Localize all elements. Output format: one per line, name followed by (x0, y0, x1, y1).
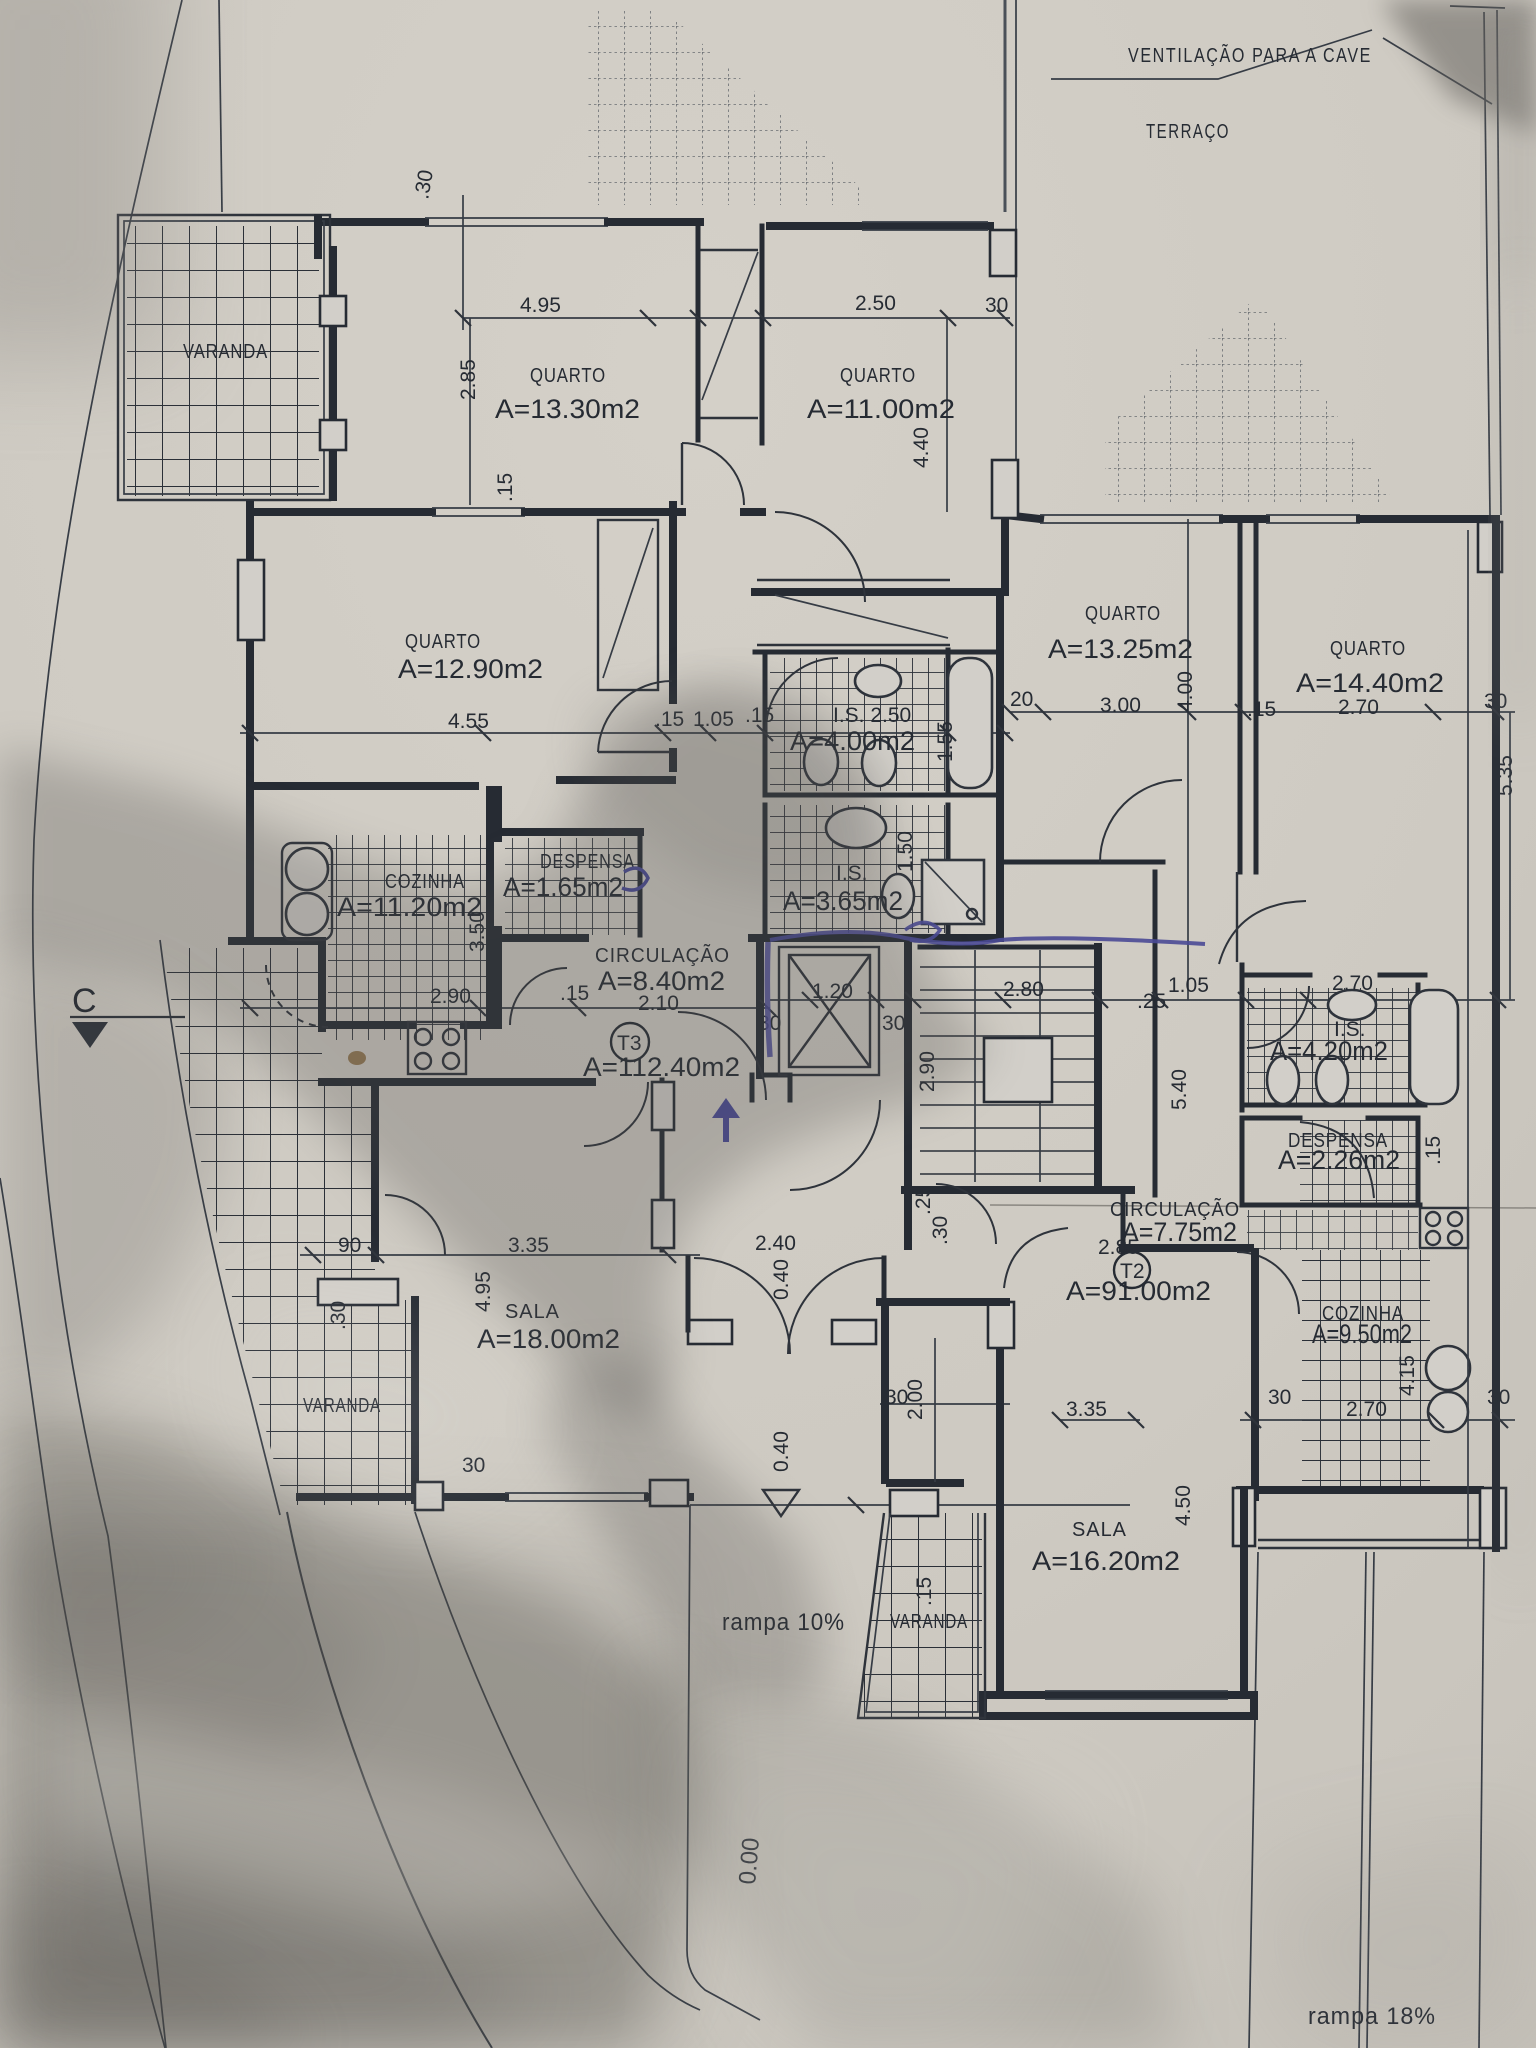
svg-text:QUARTO: QUARTO (840, 365, 916, 387)
svg-text:4.50: 4.50 (1172, 1485, 1195, 1526)
svg-text:.30: .30 (929, 1216, 952, 1245)
svg-text:1.55: 1.55 (934, 721, 957, 762)
svg-text:QUARTO: QUARTO (1330, 638, 1406, 660)
svg-text:A=16.20m2: A=16.20m2 (1032, 1546, 1180, 1576)
svg-text:30: 30 (1268, 1386, 1291, 1409)
svg-text:4.15: 4.15 (1396, 1355, 1419, 1396)
svg-text:A=12.90m2: A=12.90m2 (398, 654, 543, 684)
svg-text:2.85: 2.85 (1098, 1236, 1139, 1259)
svg-text:.15: .15 (913, 1577, 936, 1606)
svg-text:QUARTO: QUARTO (530, 365, 606, 387)
svg-text:.25: .25 (1137, 990, 1166, 1013)
svg-text:SALA: SALA (1072, 1519, 1127, 1541)
svg-text:2.70: 2.70 (1338, 696, 1379, 719)
svg-text:5.40: 5.40 (1168, 1069, 1191, 1110)
svg-text:2.80: 2.80 (1003, 978, 1044, 1001)
svg-text:I.S. 2.50: I.S. 2.50 (833, 704, 911, 727)
svg-text:A=91.00m2: A=91.00m2 (1066, 1276, 1211, 1306)
svg-text:3.35: 3.35 (1066, 1398, 1107, 1421)
svg-text:.15: .15 (1247, 698, 1276, 721)
svg-text:VARANDA: VARANDA (890, 1611, 968, 1633)
svg-text:1.05: 1.05 (1168, 974, 1209, 997)
svg-text:90: 90 (338, 1234, 361, 1257)
svg-text:3.00: 3.00 (1100, 694, 1141, 717)
svg-text:0.40: 0.40 (770, 1431, 793, 1472)
svg-text:4.40: 4.40 (910, 427, 933, 468)
svg-text:20: 20 (1010, 688, 1033, 711)
svg-text:A=13.25m2: A=13.25m2 (1048, 634, 1193, 664)
svg-text:A=11.00m2: A=11.00m2 (807, 394, 955, 424)
svg-text:A=13.30m2: A=13.30m2 (495, 394, 640, 424)
svg-text:2.40: 2.40 (755, 1232, 796, 1255)
svg-text:.15: .15 (1422, 1136, 1445, 1165)
svg-text:VARANDA: VARANDA (183, 341, 268, 363)
svg-text:2.50: 2.50 (855, 292, 896, 315)
svg-text:VENTILAÇÃO PARA A CAVE: VENTILAÇÃO PARA A CAVE (1128, 43, 1372, 67)
svg-text:2.85: 2.85 (457, 359, 480, 400)
svg-text:2.70: 2.70 (1346, 1398, 1387, 1421)
svg-text:QUARTO: QUARTO (1085, 603, 1161, 625)
svg-text:A=7.75m2: A=7.75m2 (1122, 1217, 1237, 1247)
svg-text:.25: .25 (912, 1186, 935, 1215)
svg-text:A=14.40m2: A=14.40m2 (1296, 668, 1444, 698)
svg-text:A=4.20m2: A=4.20m2 (1270, 1036, 1388, 1066)
svg-text:4.95: 4.95 (520, 294, 561, 317)
svg-text:TERRAÇO: TERRAÇO (1146, 121, 1230, 143)
svg-text:1.50: 1.50 (894, 831, 917, 872)
svg-text:0.40: 0.40 (770, 1259, 793, 1300)
svg-text:2.70: 2.70 (1332, 972, 1373, 995)
svg-text:A=9.50m2: A=9.50m2 (1312, 1319, 1412, 1349)
svg-text:A=2.26m2: A=2.26m2 (1278, 1145, 1400, 1175)
svg-text:30: 30 (985, 294, 1008, 317)
svg-text:4.55: 4.55 (448, 710, 489, 733)
svg-text:.15: .15 (494, 473, 517, 502)
svg-text:2.00: 2.00 (904, 1379, 927, 1420)
svg-text:4.00: 4.00 (1174, 671, 1197, 712)
svg-text:QUARTO: QUARTO (405, 631, 481, 653)
